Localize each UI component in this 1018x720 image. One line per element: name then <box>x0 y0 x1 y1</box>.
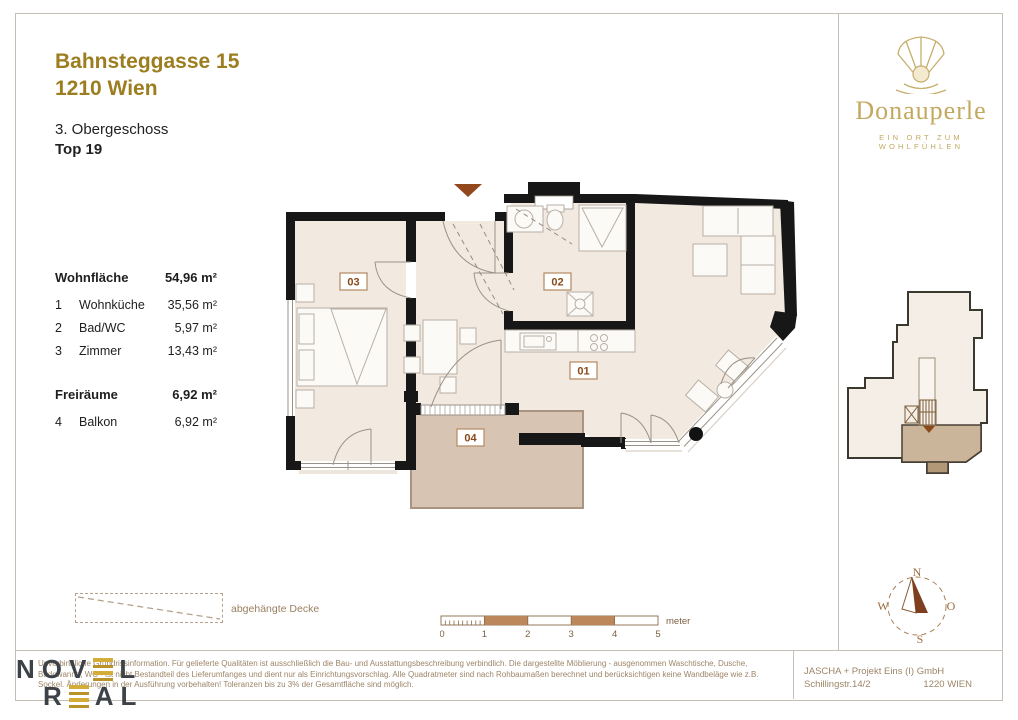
room-label-04: 04 <box>464 433 477 445</box>
group-value: 54,96 m² <box>165 270 217 285</box>
scale-bar: 0 1 2 3 4 5 meter <box>440 610 710 644</box>
floorplan-drawing: 01 02 03 04 <box>283 178 833 523</box>
chair <box>440 377 456 393</box>
row-number: 2 <box>55 321 79 335</box>
row-value: 35,56 m² <box>168 298 217 312</box>
vertical-divider <box>838 13 839 650</box>
column <box>689 427 703 441</box>
striped-e-icon <box>69 685 89 708</box>
disclaimer-line: Badewanne, WC - ist nicht Bestandteil de… <box>38 670 790 681</box>
burner <box>601 344 608 351</box>
company-address: Schillingstr.14/2 1220 WIEN <box>804 678 972 691</box>
row-value: 5,97 m² <box>175 321 217 335</box>
area-table: Wohnfläche 54,96 m² 1 Wohnküche 35,56 m²… <box>55 270 217 438</box>
company-street: Schillingstr.14/2 <box>804 678 871 691</box>
suspended-ceiling-legend-label: abgehängte Decke <box>231 603 319 615</box>
table-row: 3 Zimmer 13,43 m² <box>55 344 217 358</box>
burner <box>591 335 598 342</box>
table-group-header: Freiräume 6,92 m² <box>55 387 217 402</box>
compass-east: O <box>947 599 956 613</box>
address-line-1: Bahnsteggasse 15 <box>55 48 239 75</box>
group-label: Freiräume <box>55 387 172 402</box>
disclaimer-text: Unverbindliche Grundrissinformation. Für… <box>38 659 790 691</box>
shower <box>579 205 626 251</box>
company-name: JASCHA + Projekt Eins (I) GmbH <box>804 665 972 678</box>
suspended-ceiling-legend-swatch <box>75 593 223 623</box>
compass-rose: N O S W <box>875 562 960 647</box>
logo-text: L <box>119 656 142 683</box>
chair <box>404 325 420 341</box>
scale-tick: 2 <box>525 629 530 640</box>
disclaimer-line: Unverbindliche Grundrissinformation. Für… <box>38 659 790 670</box>
chair <box>460 328 476 344</box>
pillow <box>299 350 314 380</box>
corridor <box>919 358 935 425</box>
row-number: 3 <box>55 344 79 358</box>
balcony-door-sill <box>421 405 505 415</box>
footer-divider <box>15 650 1002 651</box>
company-block: JASCHA + Projekt Eins (I) GmbH Schilling… <box>804 665 972 691</box>
logo-text: NOV <box>16 656 93 683</box>
table-row: 2 Bad/WC 5,97 m² <box>55 321 217 335</box>
floor-unit-block: 3. Obergeschoss Top 19 <box>55 120 168 160</box>
table-row: 4 Balkon 6,92 m² <box>55 415 217 429</box>
scale-unit-label: meter <box>666 616 690 627</box>
room-label-03: 03 <box>347 277 359 289</box>
building-key-plan <box>845 280 995 480</box>
unit-balcony-highlight <box>927 462 948 473</box>
row-name: Zimmer <box>79 344 168 358</box>
table-group-header: Wohnfläche 54,96 m² <box>55 270 217 285</box>
row-name: Balkon <box>79 415 175 429</box>
scale-tick: 0 <box>440 629 445 640</box>
address-line-2: 1210 Wien <box>55 75 239 102</box>
room-label-01: 01 <box>577 366 589 378</box>
striped-e-icon <box>93 658 113 681</box>
dining-table <box>423 320 457 374</box>
brand-name: Donauperle <box>840 96 1002 126</box>
compass-south: S <box>917 632 924 646</box>
shell-pearl-icon <box>886 28 956 94</box>
disclaimer-line: Sockel. Änderungen in der Ausführung vor… <box>38 680 790 691</box>
unit-highlight <box>902 425 981 462</box>
compass-north: N <box>913 565 922 579</box>
scale-tick-labels: 0 1 2 3 4 5 <box>440 629 661 640</box>
brand-block: Donauperle EIN ORT ZUM WOHLFÜHLEN <box>840 28 1002 151</box>
scale-tick: 4 <box>612 629 617 640</box>
row-value: 6,92 m² <box>175 415 217 429</box>
floor-label: 3. Obergeschoss <box>55 120 168 140</box>
address-block: Bahnsteggasse 15 1210 Wien <box>55 48 239 102</box>
balcony-area <box>411 411 583 508</box>
table-row: 1 Wohnküche 35,56 m² <box>55 298 217 312</box>
row-name: Wohnküche <box>79 298 168 312</box>
row-value: 13,43 m² <box>168 344 217 358</box>
chair <box>404 357 420 373</box>
scale-tick: 5 <box>655 629 660 640</box>
scale-tick: 3 <box>569 629 574 640</box>
scale-tick: 1 <box>482 629 487 640</box>
row-name: Bad/WC <box>79 321 175 335</box>
unit-label: Top 19 <box>55 140 168 160</box>
logo-line-2: R AL <box>43 683 143 710</box>
row-number: 4 <box>55 415 79 429</box>
compass-west: W <box>877 599 889 613</box>
nightstand <box>296 390 314 408</box>
wc <box>547 210 563 230</box>
floorplan-document-page: Bahnsteggasse 15 1210 Wien 3. Obergescho… <box>0 0 1018 720</box>
brand-tagline: EIN ORT ZUM WOHLFÜHLEN <box>840 133 1002 151</box>
company-city: 1220 WIEN <box>923 678 972 691</box>
logo-text: AL <box>95 683 144 710</box>
armchair <box>693 244 727 276</box>
pillow <box>299 314 314 344</box>
footer-vertical-divider <box>793 650 794 699</box>
room-label-02: 02 <box>551 277 563 289</box>
row-number: 1 <box>55 298 79 312</box>
group-value: 6,92 m² <box>172 387 217 402</box>
logo-text: R <box>43 683 69 710</box>
nightstand <box>296 284 314 302</box>
burner <box>591 344 598 351</box>
group-label: Wohnfläche <box>55 270 165 285</box>
entrance-arrow-icon <box>454 184 482 197</box>
burner <box>601 335 608 342</box>
novel-real-logo: NOV L R AL <box>16 656 143 710</box>
logo-line-1: NOV L <box>16 656 143 683</box>
